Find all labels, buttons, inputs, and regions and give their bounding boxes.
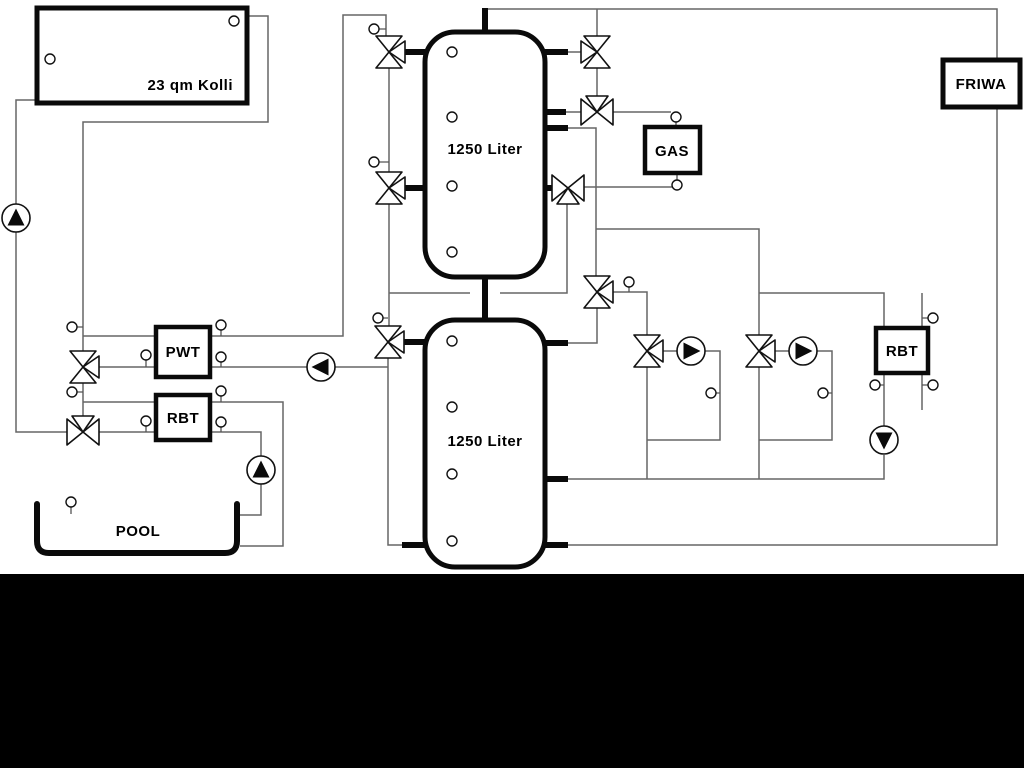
scheme-canvas: 23 qm Kolli 1250 Liter 1250 Liter GAS FR… xyxy=(0,0,1024,768)
hydraulic-scheme: 23 qm Kolli 1250 Liter 1250 Liter GAS FR… xyxy=(0,0,1024,768)
temp-sensor-icon xyxy=(45,54,55,64)
three-way-valve-solar-rbt xyxy=(67,416,99,445)
temp-sensor-icon xyxy=(141,350,151,360)
collector-label: 23 qm Kolli xyxy=(147,77,233,94)
temp-sensor-icon xyxy=(447,47,457,57)
temp-sensor-icon xyxy=(818,388,828,398)
three-way-valve-tank1-right-top xyxy=(581,36,610,68)
temp-sensor-icon xyxy=(67,387,77,397)
temp-sensor-icon xyxy=(369,24,379,34)
rbt-right-circuit-pipes xyxy=(567,293,922,479)
tank-top-label: 1250 Liter xyxy=(447,141,522,158)
temp-sensor-icon xyxy=(373,313,383,323)
rbt-return-pump-icon xyxy=(870,426,898,454)
temp-sensor-icon xyxy=(141,416,151,426)
heating-group-pipes xyxy=(647,351,832,479)
right-distribution-pipes xyxy=(567,128,884,343)
three-way-valve-tank1-left-top xyxy=(376,36,405,68)
temp-sensor-icon xyxy=(447,536,457,546)
temp-sensor-icon xyxy=(447,402,457,412)
three-way-valve-heating-group-2 xyxy=(746,335,775,367)
temp-sensor-icon xyxy=(447,247,457,257)
pwt-charge-pump-icon xyxy=(307,353,335,381)
temp-sensor-icon xyxy=(369,157,379,167)
pool-label: POOL xyxy=(116,523,161,540)
temp-sensor-icon xyxy=(870,380,880,390)
top-loop-friwa-pipe xyxy=(485,9,997,545)
rbt-right-label: RBT xyxy=(886,343,918,360)
temp-sensor-icon xyxy=(216,417,226,427)
temp-sensor-icon xyxy=(66,497,76,507)
three-way-valve-gas-supply xyxy=(581,96,613,125)
temp-sensor-icon xyxy=(447,112,457,122)
heating-pump-2-icon xyxy=(789,337,817,365)
temp-sensor-icon xyxy=(928,380,938,390)
temp-sensor-icon xyxy=(671,112,681,122)
gas-label: GAS xyxy=(655,143,689,160)
temp-sensor-icon xyxy=(447,336,457,346)
tank-bottom-label: 1250 Liter xyxy=(447,433,522,450)
temp-sensor-icon xyxy=(928,313,938,323)
pwt-label: PWT xyxy=(166,344,201,361)
three-way-valve-heating-group-1 xyxy=(634,335,663,367)
friwa-label: FRIWA xyxy=(956,76,1007,93)
pool-pump-icon xyxy=(247,456,275,484)
temp-sensor-icon xyxy=(672,180,682,190)
temp-sensor-icon xyxy=(216,352,226,362)
three-way-valve-solar-pwt xyxy=(70,351,99,383)
temp-sensor-icon xyxy=(216,386,226,396)
temp-sensor-icon xyxy=(706,388,716,398)
temp-sensor-icon xyxy=(624,277,634,287)
temp-sensor-icon xyxy=(447,469,457,479)
bottom-black-bar xyxy=(0,574,1024,768)
temp-sensor-icon xyxy=(67,322,77,332)
heating-pump-1-icon xyxy=(677,337,705,365)
three-way-valve-tank2-left xyxy=(375,326,404,358)
temp-sensor-icon xyxy=(447,181,457,191)
three-way-valve-tank1-left-mid xyxy=(376,172,405,204)
rbt-left-label: RBT xyxy=(167,410,199,427)
solar-pump-icon xyxy=(2,204,30,232)
temp-sensor-icon xyxy=(216,320,226,330)
temp-sensor-icon xyxy=(229,16,239,26)
three-way-valve-distribution xyxy=(584,276,613,308)
three-way-valve-gas-return xyxy=(552,175,584,204)
